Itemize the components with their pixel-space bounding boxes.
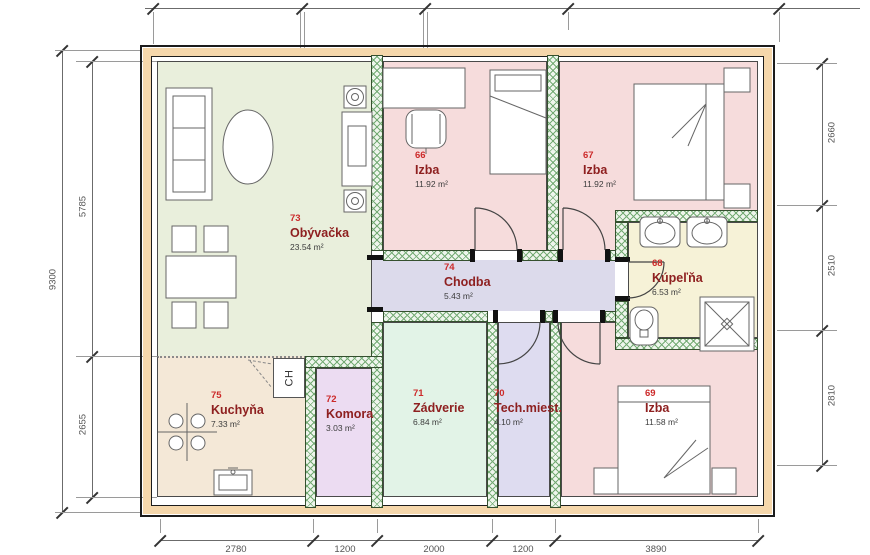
room-name: Izba: [645, 400, 678, 416]
room-area: 11.58 m²: [645, 417, 678, 428]
dim-label-left-upper: 5785: [78, 187, 89, 227]
dim-extension: [313, 519, 314, 533]
door-jamb: [558, 249, 563, 262]
wall-komora-top: [305, 356, 383, 368]
wall-izba66-izba67: [547, 55, 559, 251]
room-area: 6.53 m²: [652, 287, 703, 298]
door-jamb: [605, 249, 610, 262]
fridge-label: CH: [283, 370, 295, 387]
dim-extension: [555, 519, 556, 533]
dim-label-bottom-1: 2780: [211, 544, 261, 555]
room-area: 23.54 m²: [290, 242, 349, 253]
dim-extension: [777, 330, 837, 331]
door-jamb: [615, 296, 630, 301]
wall-chodba-top-a: [383, 250, 471, 261]
room-number: 71: [413, 388, 464, 400]
room-area: 7.33 m²: [211, 419, 264, 430]
room-label-zadverie: 71 Zádverie 6.84 m²: [413, 388, 464, 428]
passage-jamb: [367, 307, 383, 312]
wall-kupelna-west-lower: [615, 301, 628, 338]
room-area: 3.03 m²: [326, 423, 373, 434]
room-area: 4.10 m²: [494, 417, 562, 428]
room-label-izba67: 67 Izba 11.92 m²: [583, 150, 616, 190]
wall-chodba-bottom-b: [545, 311, 553, 322]
dim-label-left-total: 9300: [48, 260, 59, 300]
dim-extension: [777, 63, 837, 64]
dim-extension: [777, 465, 837, 466]
room-name: Zádverie: [413, 400, 464, 416]
room-name: Chodba: [444, 274, 491, 290]
dim-label-left-lower: 2655: [78, 405, 89, 445]
wall-chodba-bottom-a: [383, 311, 488, 322]
dim-label-bottom-3: 2000: [409, 544, 459, 555]
room-number: 74: [444, 262, 491, 274]
wall-kupelna-bottom: [615, 338, 758, 350]
dim-line-left-total: [62, 50, 63, 512]
dim-extension: [758, 519, 759, 533]
dim-extension: [568, 12, 569, 30]
room-label-chodba: 74 Chodba 5.43 m²: [444, 262, 491, 302]
room-number: 68: [652, 258, 703, 270]
door-jamb: [470, 249, 475, 262]
room-obyvacka: [157, 61, 372, 356]
room-label-kuchyna: 75 Kuchyňa 7.33 m²: [211, 390, 264, 430]
room-number: 72: [326, 394, 373, 406]
floor-plan: 9300 5785 2655 2660 2510 2810 2780 1200 …: [0, 0, 870, 555]
dim-extension: [777, 205, 837, 206]
dim-label-bottom-2: 1200: [320, 544, 370, 555]
room-label-komora: 72 Komora 3.03 m²: [326, 394, 373, 434]
wall-living-izba66: [371, 55, 383, 251]
dim-line-top: [145, 8, 860, 9]
room-name: Obývačka: [290, 225, 349, 241]
dim-line-right: [822, 63, 823, 465]
room-name: Tech.miest.: [494, 400, 562, 416]
door-jamb: [493, 310, 498, 323]
room-izba-66: [383, 61, 547, 251]
dim-extension: [492, 519, 493, 533]
wall-kupelna-top: [615, 210, 758, 222]
wall-kuchyna-komora: [305, 356, 316, 508]
room-number: 75: [211, 390, 264, 402]
dim-extension: [779, 12, 780, 42]
room-area: 11.92 m²: [415, 179, 448, 190]
room-label-izba66: 66 Izba 11.92 m²: [415, 150, 448, 190]
room-label-obyvacka: 73 Obývačka 23.54 m²: [290, 213, 349, 253]
room-label-kupelna: 68 Kúpeľňa 6.53 m²: [652, 258, 703, 298]
room-name: Izba: [583, 162, 616, 178]
dim-label-bottom-5: 3890: [631, 544, 681, 555]
dim-extension: [160, 519, 161, 533]
room-chodba: [372, 260, 615, 311]
room-label-izba69: 69 Izba 11.58 m²: [645, 388, 678, 428]
room-name: Kuchyňa: [211, 402, 264, 418]
wall-chodba-top-b: [522, 250, 558, 261]
dim-line-left-inner: [92, 61, 93, 497]
door-jamb: [615, 257, 630, 262]
fridge-box: CH: [273, 358, 305, 398]
room-area: 6.84 m²: [413, 417, 464, 428]
room-name: Izba: [415, 162, 448, 178]
dim-label-right-top: 2660: [827, 113, 838, 153]
room-area: 5.43 m²: [444, 291, 491, 302]
dim-extension: [153, 12, 154, 44]
room-number: 66: [415, 150, 448, 162]
dim-extension: [55, 512, 140, 513]
door-jamb: [517, 249, 522, 262]
dim-label-right-bottom: 2810: [827, 376, 838, 416]
room-number: 69: [645, 388, 678, 400]
door-jamb: [540, 310, 545, 323]
room-number: 73: [290, 213, 349, 225]
passage-jamb: [367, 255, 383, 260]
door-jamb: [553, 310, 558, 323]
door-jamb: [600, 310, 605, 323]
room-name: Komora: [326, 406, 373, 422]
dim-line-bottom: [160, 540, 759, 541]
wall-kupelna-west-upper: [615, 222, 628, 262]
dim-extension: [55, 50, 140, 51]
room-label-tech-miest: 70 Tech.miest. 4.10 m²: [494, 388, 562, 428]
room-area: 11.92 m²: [583, 179, 616, 190]
room-name: Kúpeľňa: [652, 270, 703, 286]
dim-extension: [377, 519, 378, 533]
room-number: 67: [583, 150, 616, 162]
dim-label-right-middle: 2510: [827, 246, 838, 286]
dim-label-bottom-4: 1200: [498, 544, 548, 555]
room-number: 70: [494, 388, 562, 400]
